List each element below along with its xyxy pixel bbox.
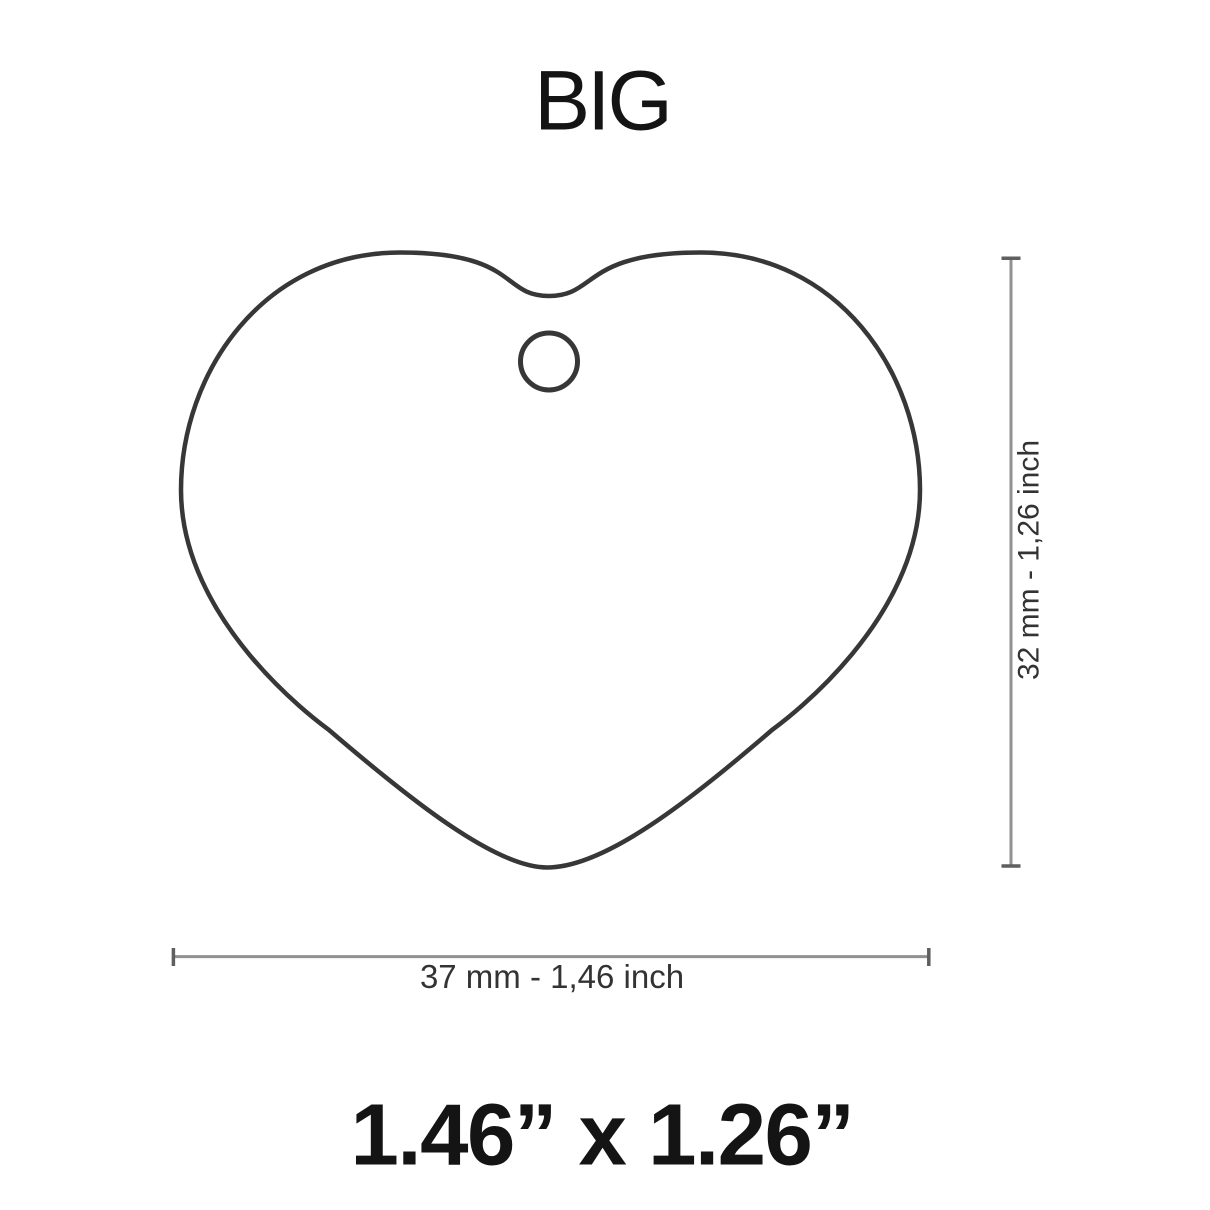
svg-text:BIG: BIG [534,54,670,148]
svg-text:1.46” x 1.26”: 1.46” x 1.26” [351,1086,854,1183]
svg-text:37 mm - 1,46 inch: 37 mm - 1,46 inch [420,958,684,995]
svg-text:32 mm - 1,26 inch: 32 mm - 1,26 inch [1013,440,1046,680]
